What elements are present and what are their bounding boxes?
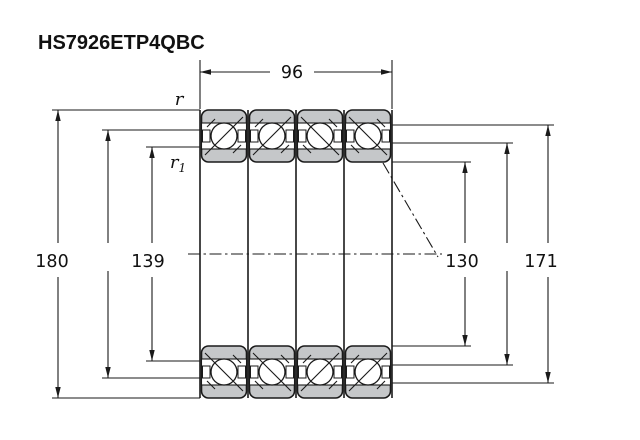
- dim-inner-shoulder-value: 139: [131, 252, 164, 272]
- bearing-technical-drawing: HS7926ETP4QBC r r1: [0, 0, 640, 440]
- dim-bore-value: 130: [445, 252, 478, 272]
- bearing-drawing-page: HS7926ETP4QBC r r1: [0, 0, 640, 440]
- bearing-unit-bottom-1: [202, 346, 247, 398]
- chamfer-label-r1: r1: [170, 152, 186, 175]
- drawing-title: HS7926ETP4QBC: [38, 32, 205, 54]
- chamfer-label-r: r: [175, 89, 185, 110]
- dim-outer-shoulder-value: 171: [524, 252, 557, 272]
- dim-width: 96: [200, 60, 392, 109]
- bearing-unit-bottom-2: [250, 346, 295, 398]
- dim-width-value: 96: [281, 63, 303, 83]
- dim-outer-diameter-value: 180: [35, 252, 68, 272]
- bearing-unit-top-3: [298, 110, 343, 162]
- bearing-unit-bottom-4: [346, 346, 391, 398]
- bearing-unit-top-1: [202, 110, 247, 162]
- bearing-unit-bottom-3: [298, 346, 343, 398]
- bearing-unit-top-4: [346, 110, 391, 162]
- bearing-assembly: [188, 110, 442, 398]
- bearing-unit-top-2: [250, 110, 295, 162]
